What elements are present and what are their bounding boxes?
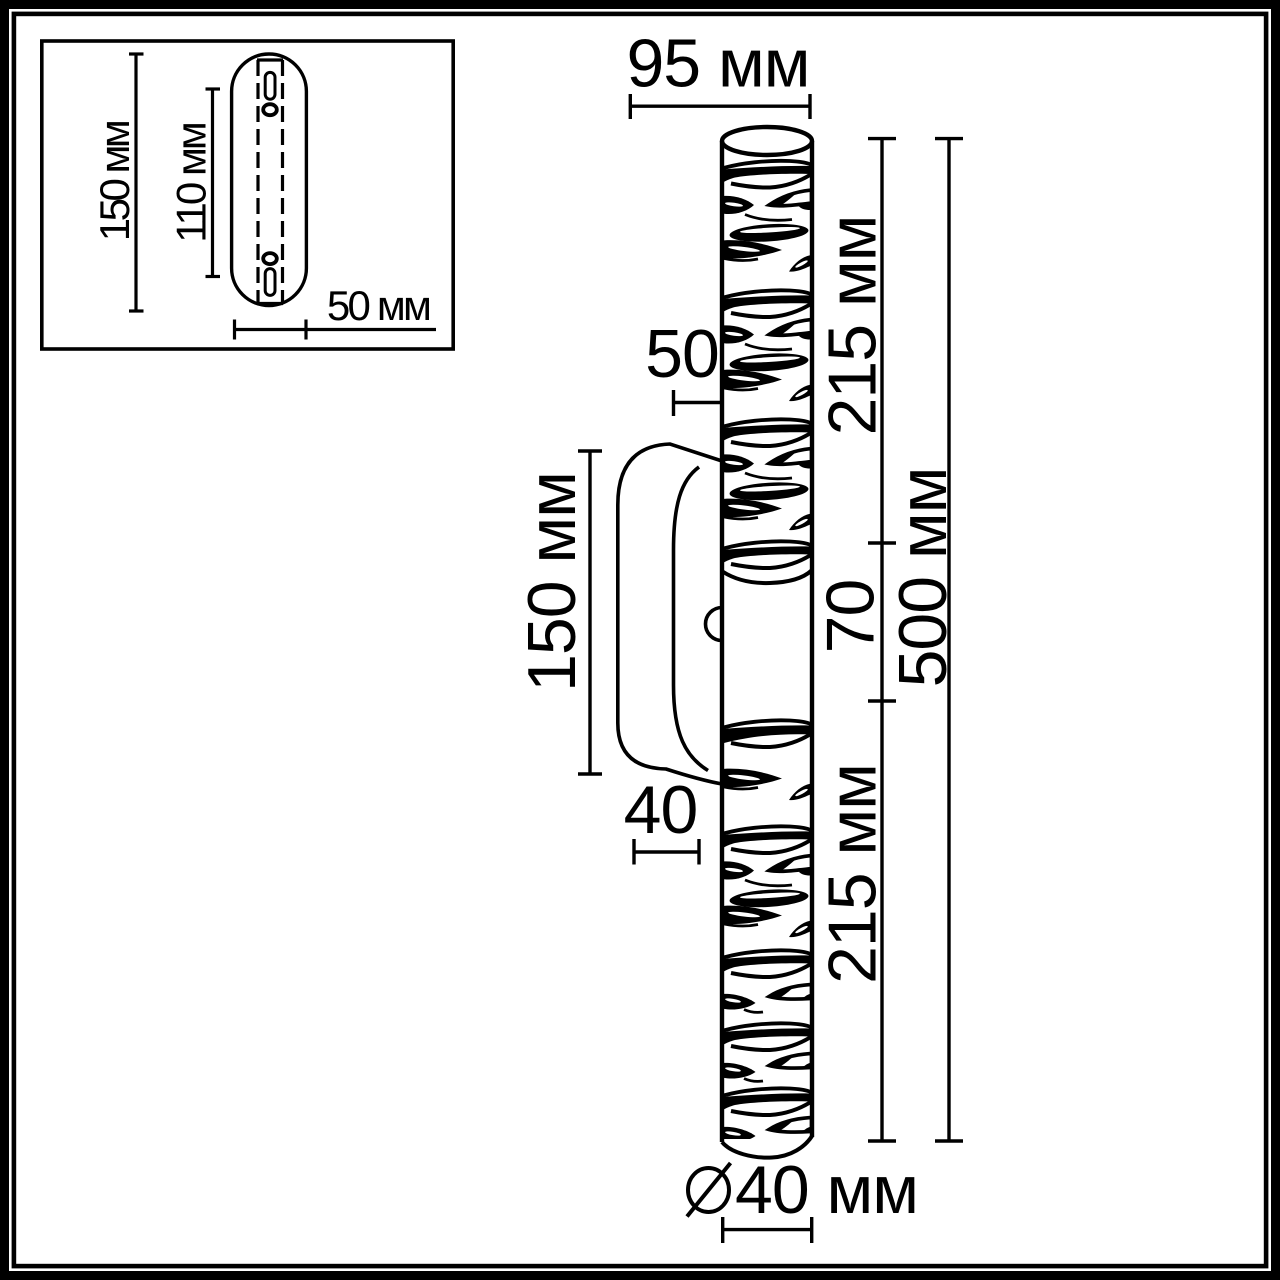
svg-text:70: 70 [813, 580, 889, 654]
svg-text:50 мм: 50 мм [327, 282, 429, 329]
svg-text:40: 40 [624, 772, 698, 848]
svg-text:150 мм: 150 мм [91, 122, 138, 241]
svg-text:215 мм: 215 мм [815, 764, 891, 984]
svg-text:95 мм: 95 мм [626, 26, 809, 102]
svg-text:110 мм: 110 мм [168, 124, 215, 243]
svg-text:40 мм: 40 мм [735, 1152, 918, 1228]
svg-text:215 мм: 215 мм [815, 216, 891, 436]
svg-text:150 мм: 150 мм [514, 472, 590, 692]
svg-text:500 мм: 500 мм [885, 468, 961, 688]
svg-text:50: 50 [645, 316, 719, 392]
